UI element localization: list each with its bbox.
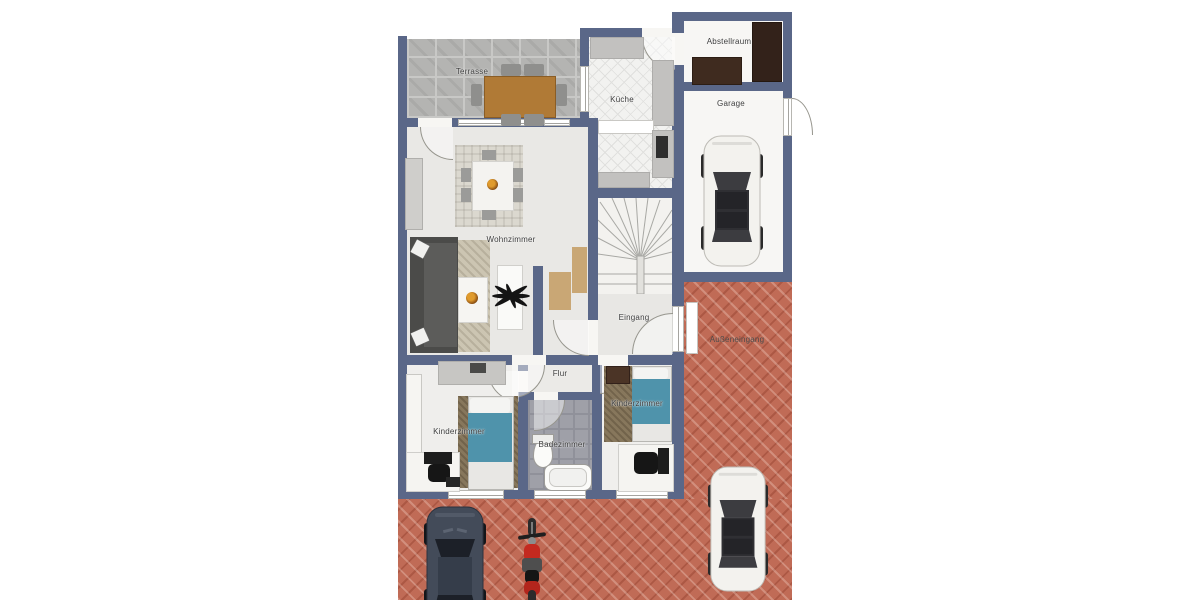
car-top-view-white-icon <box>707 465 769 593</box>
terrace-chair <box>471 84 482 106</box>
terrace-chair <box>556 84 567 106</box>
kitchen-counter <box>652 60 674 126</box>
bed-pillow <box>634 368 668 379</box>
wall-stub <box>533 266 543 355</box>
bed-pillow <box>470 398 510 413</box>
sofa-cushions <box>424 243 457 347</box>
kitchen-counter <box>598 172 650 188</box>
terrace-chair <box>501 64 521 76</box>
desk-chair <box>634 452 658 474</box>
door-opening <box>598 355 628 365</box>
room-label-terrasse: Terrasse <box>456 68 488 76</box>
room-label-ausseneingang: Außeneingang <box>710 336 764 344</box>
room-label-flur: Flur <box>553 370 568 378</box>
car-top-view-white-icon <box>700 134 764 268</box>
room-label-kueche: Küche <box>610 96 634 104</box>
room-label-abstellraum: Abstellraum <box>707 38 751 46</box>
wall <box>588 118 598 320</box>
floor-mat <box>572 247 587 293</box>
room-label-kinderzimmer-links: Kinderzimmer <box>433 428 485 436</box>
kitchen-island <box>598 120 654 134</box>
door-opening <box>588 320 598 355</box>
bed-blanket <box>468 413 512 462</box>
terrace-chair <box>524 114 544 126</box>
garage-door-arc <box>792 98 813 135</box>
plant-icon <box>466 292 478 304</box>
window <box>544 119 570 126</box>
entrance-doormat <box>686 302 698 354</box>
room-label-kinderzimmer-rechts: Kinderzimmer <box>611 400 663 408</box>
storage-cabinet <box>752 22 782 82</box>
room-label-wohnzimmer: Wohnzimmer <box>487 236 536 244</box>
window <box>534 490 586 499</box>
floor-mat <box>549 272 571 310</box>
wall <box>672 272 792 282</box>
wall <box>558 392 592 400</box>
dresser-item <box>470 363 486 373</box>
dining-chair <box>513 188 523 202</box>
printer <box>446 477 460 487</box>
wall <box>628 355 684 365</box>
room-label-eingang: Eingang <box>619 314 650 322</box>
wall <box>783 12 792 86</box>
plant-icon <box>487 179 498 190</box>
terrace-chair <box>501 114 521 126</box>
wall <box>672 12 792 21</box>
wall <box>518 392 528 497</box>
wall <box>586 490 616 499</box>
wall <box>783 86 792 98</box>
entrance-door-opening <box>672 306 684 352</box>
window <box>580 66 589 112</box>
bathtub-inner <box>549 468 587 487</box>
door-opening <box>642 28 672 37</box>
wall <box>783 136 792 282</box>
dining-chair <box>461 168 471 182</box>
monitor <box>658 448 669 474</box>
room-label-badezimmer: Badezimmer <box>539 441 586 449</box>
car-top-view-dark-icon <box>423 505 487 600</box>
wardrobe <box>606 366 630 384</box>
wall <box>588 188 684 198</box>
door-opening <box>418 118 452 127</box>
dining-chair <box>461 188 471 202</box>
sideboard <box>405 158 423 230</box>
wall <box>546 355 598 365</box>
motorcycle-top-view-red-icon <box>513 518 551 600</box>
wall <box>672 282 684 306</box>
dining-chair <box>513 168 523 182</box>
dining-chair <box>482 150 496 160</box>
storage-sideboard <box>692 57 742 85</box>
kitchen-counter <box>590 37 644 59</box>
terrace-chair <box>524 64 544 76</box>
stove <box>656 136 668 158</box>
floorplan-canvas: Terrasse Küche Abstellraum Garage Wohnzi… <box>0 0 1200 600</box>
monitor <box>424 452 452 464</box>
garage-door-opening <box>783 98 792 136</box>
room-label-garage: Garage <box>717 100 745 108</box>
wall <box>580 28 642 37</box>
door-opening <box>512 355 546 365</box>
staircase-icon <box>598 198 672 294</box>
door-opening <box>534 392 558 400</box>
dining-chair <box>482 210 496 220</box>
wall <box>504 490 534 499</box>
tv-fan-icon <box>490 270 532 322</box>
terrace-table <box>484 76 556 118</box>
